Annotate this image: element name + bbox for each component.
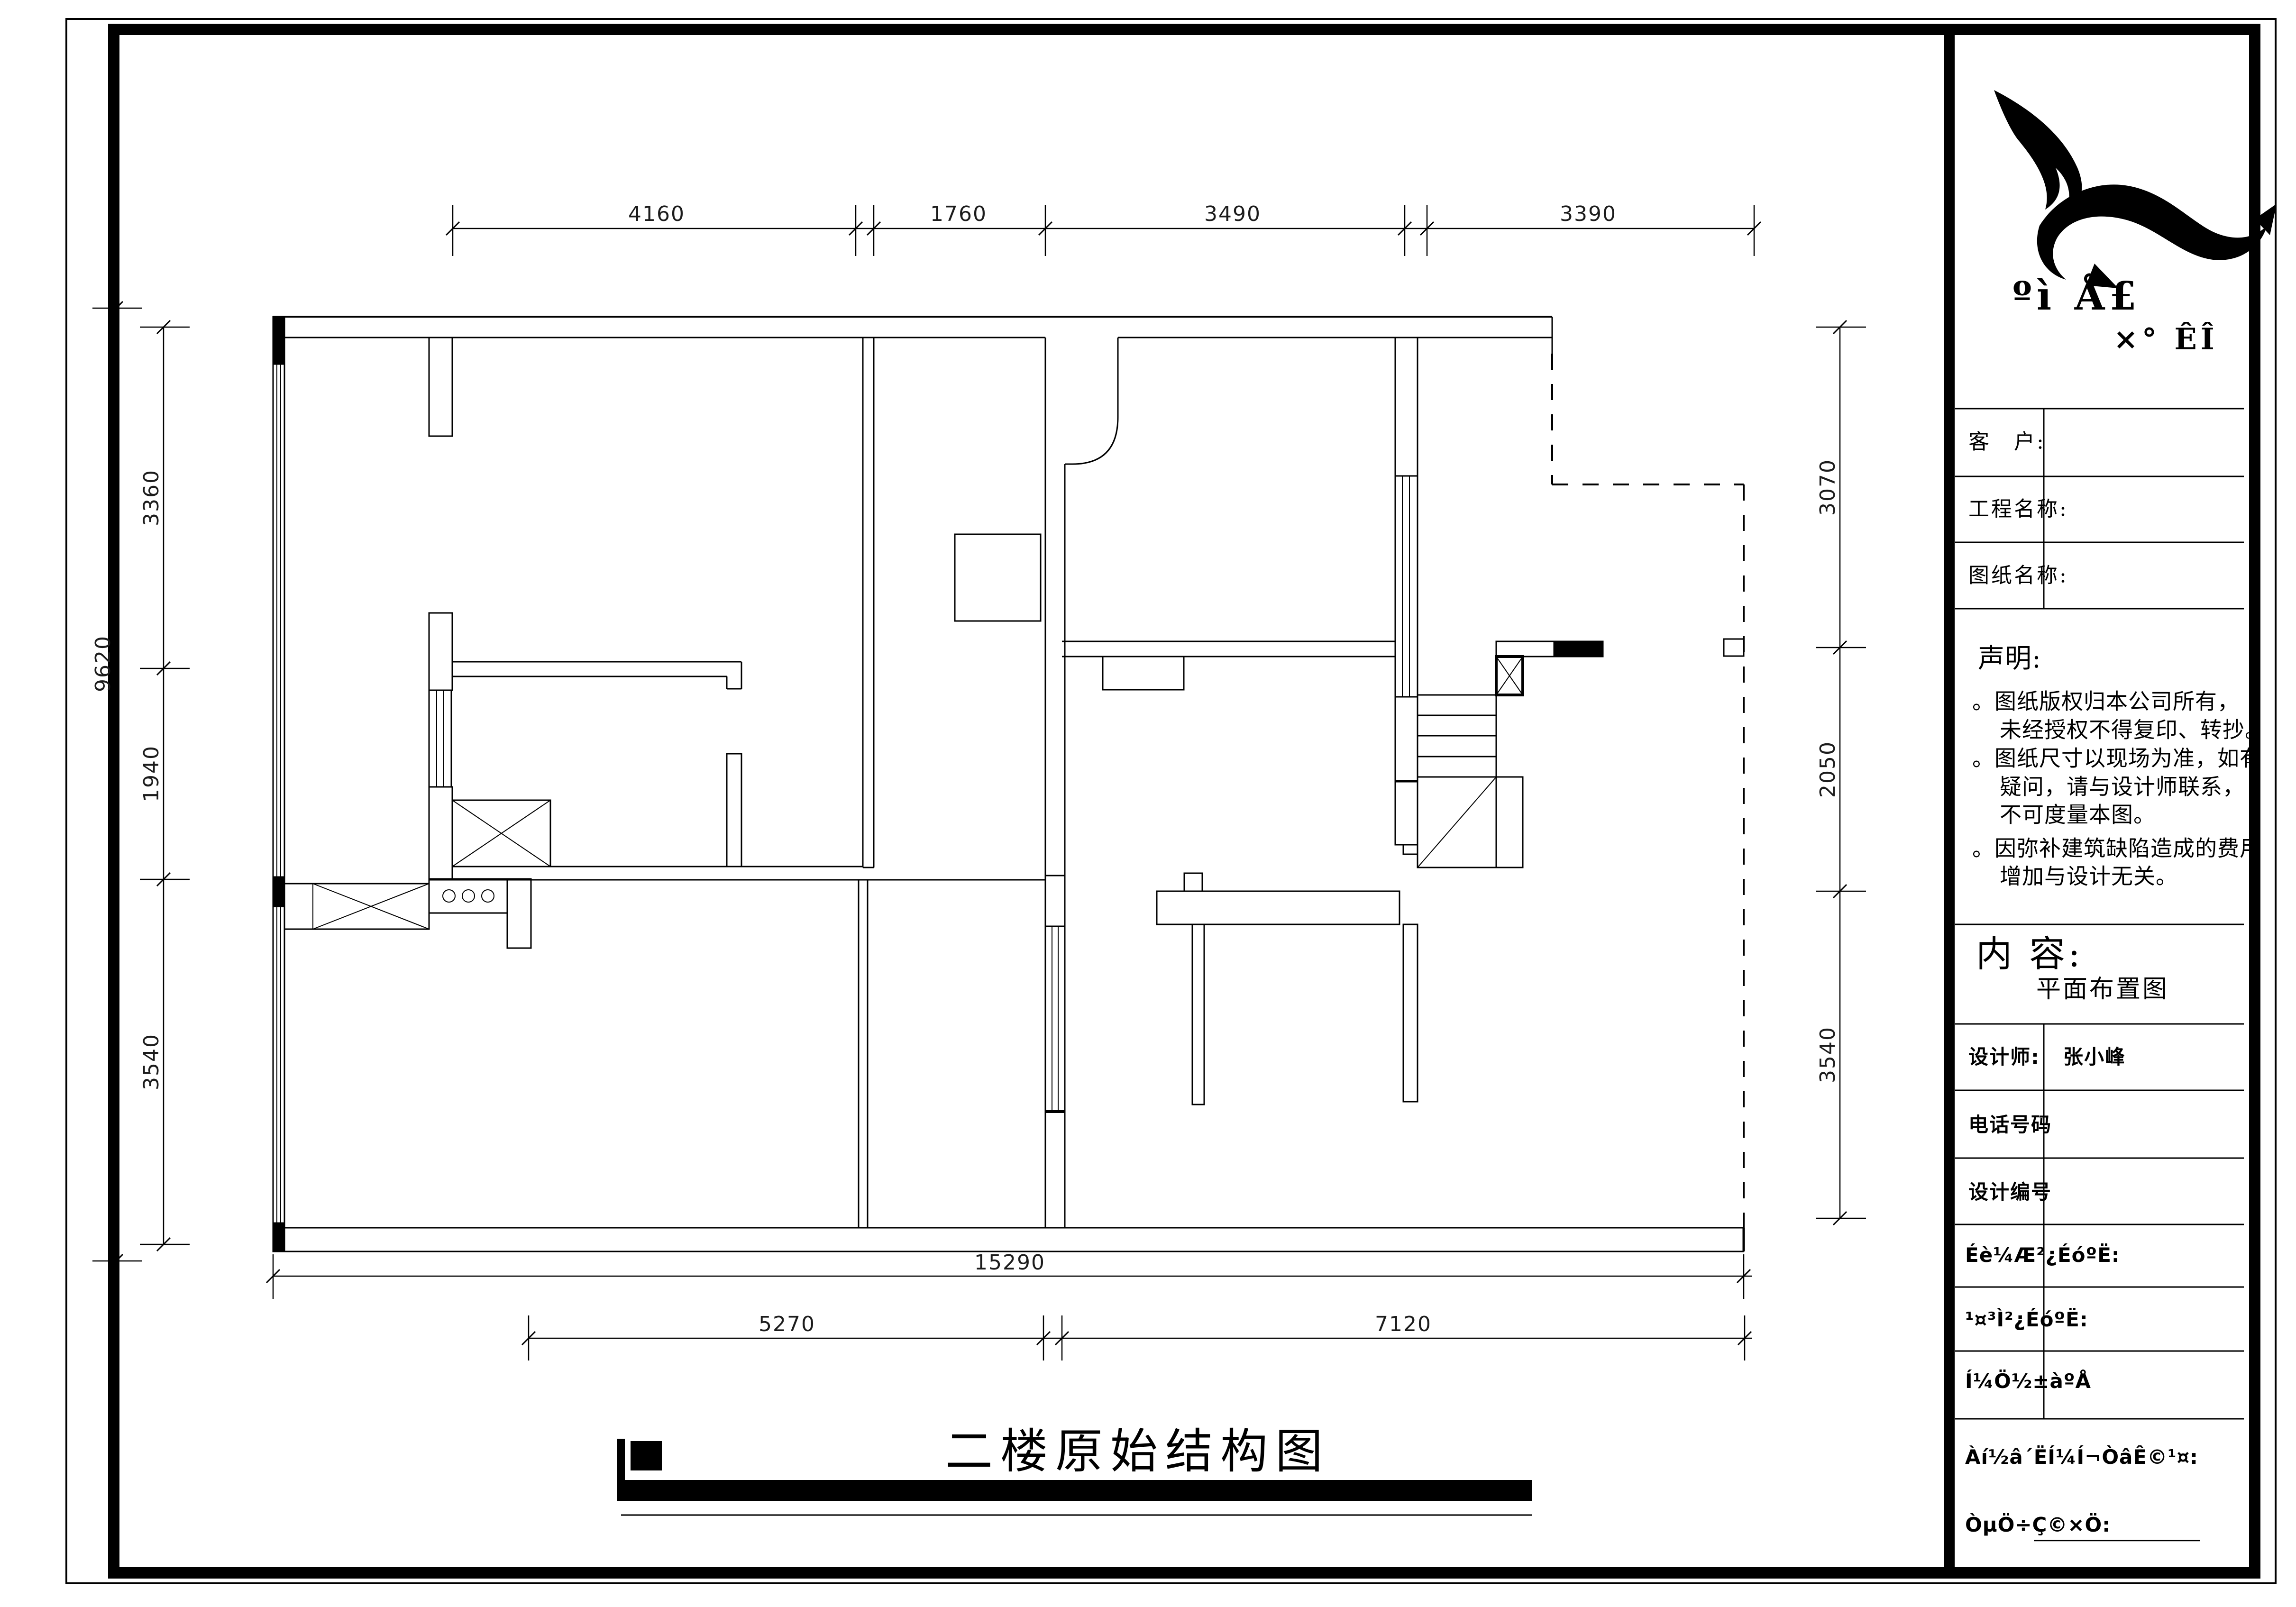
field-sheet-label: 图纸名称: [1968,564,2068,588]
dim-label-bottom-overall: 15290 [974,1252,1045,1273]
dashed-line-column [1724,639,1744,656]
review2-label: ¹¤³Ì²¿ÉóºË: [1965,1308,2088,1331]
logo-text-line1: ºì Å£ [2012,274,2141,319]
sheet-no-label: Í¼Ö½±àºÅ [1965,1370,2091,1393]
review1-label: Éè¼Æ²¿ÉóºË: [1965,1244,2120,1267]
statement-line-3b: 增加与设计无关。 [2000,864,2178,889]
page-border [66,19,2276,1583]
dimension-lines [92,205,1866,1360]
content-value: 平面布置图 [2036,976,2169,1004]
field-customer-label: 客 户: [1968,430,2046,455]
design-no-label: 设计编号 [1968,1181,2052,1204]
stairs-group [1418,641,1603,867]
drawing-title: 二楼原始结构图 [945,1428,1330,1475]
statement-line-1a: 。图纸版权归本公司所有， [1972,689,2240,714]
statement-line-2b: 疑问，请与设计师联系， [2000,775,2245,800]
dim-label-left-1: 3360 [141,469,162,526]
dim-label-bottom-1: 5270 [759,1314,815,1335]
dim-label-top-4: 3390 [1560,204,1617,225]
dim-label-top-2: 1760 [930,204,987,225]
logo-swoosh-icon [1994,90,2277,288]
dim-label-left-2: 1940 [141,745,162,802]
designer-label: 设计师: [1968,1046,2040,1068]
dim-label-right-3: 3540 [1818,1026,1839,1083]
statement-line-3a: 。因弥补建筑缺陷造成的费用 [1972,836,2262,861]
dim-label-left-overall: 9620 [93,635,114,692]
kitchen-group [284,800,550,948]
dim-label-right-1: 3070 [1818,459,1839,516]
drawing-sheet: 4160 1760 3490 3390 9620 3360 1940 3540 … [0,0,2296,1607]
dim-label-right-2: 2050 [1818,741,1839,798]
black-beam-bar [1554,641,1603,657]
dim-label-left-3: 3540 [141,1033,162,1090]
plan-linework [0,0,2296,1607]
dim-label-top-1: 4160 [628,204,685,225]
dashed-boundary [1552,354,1744,1228]
agree-label: Àí½â´ËÍ¼Í¬ÒâÊ©¹¤: [1965,1446,2198,1469]
statement-line-1b: 未经授权不得复印、转抄。 [2000,718,2267,743]
field-project-label: 工程名称: [1968,498,2068,522]
statement-line-2a: 。图纸尺寸以现场为准，如有 [1972,746,2262,771]
phone-label: 电话号码 [1968,1114,2052,1136]
dim-label-top-3: 3490 [1204,204,1261,225]
statement-heading: 声明: [1978,644,2041,674]
content-heading: 内 容: [1976,933,2083,974]
designer-value: 张小峰 [2063,1046,2126,1068]
owner-sign-label: ÒµÖ÷Ç©×Ö: [1965,1514,2111,1536]
statement-line-2c: 不可度量本图。 [2000,803,2156,828]
logo-text-line2: ×° ÊÎ [2113,322,2218,356]
dim-label-bottom-2: 7120 [1375,1314,1432,1335]
